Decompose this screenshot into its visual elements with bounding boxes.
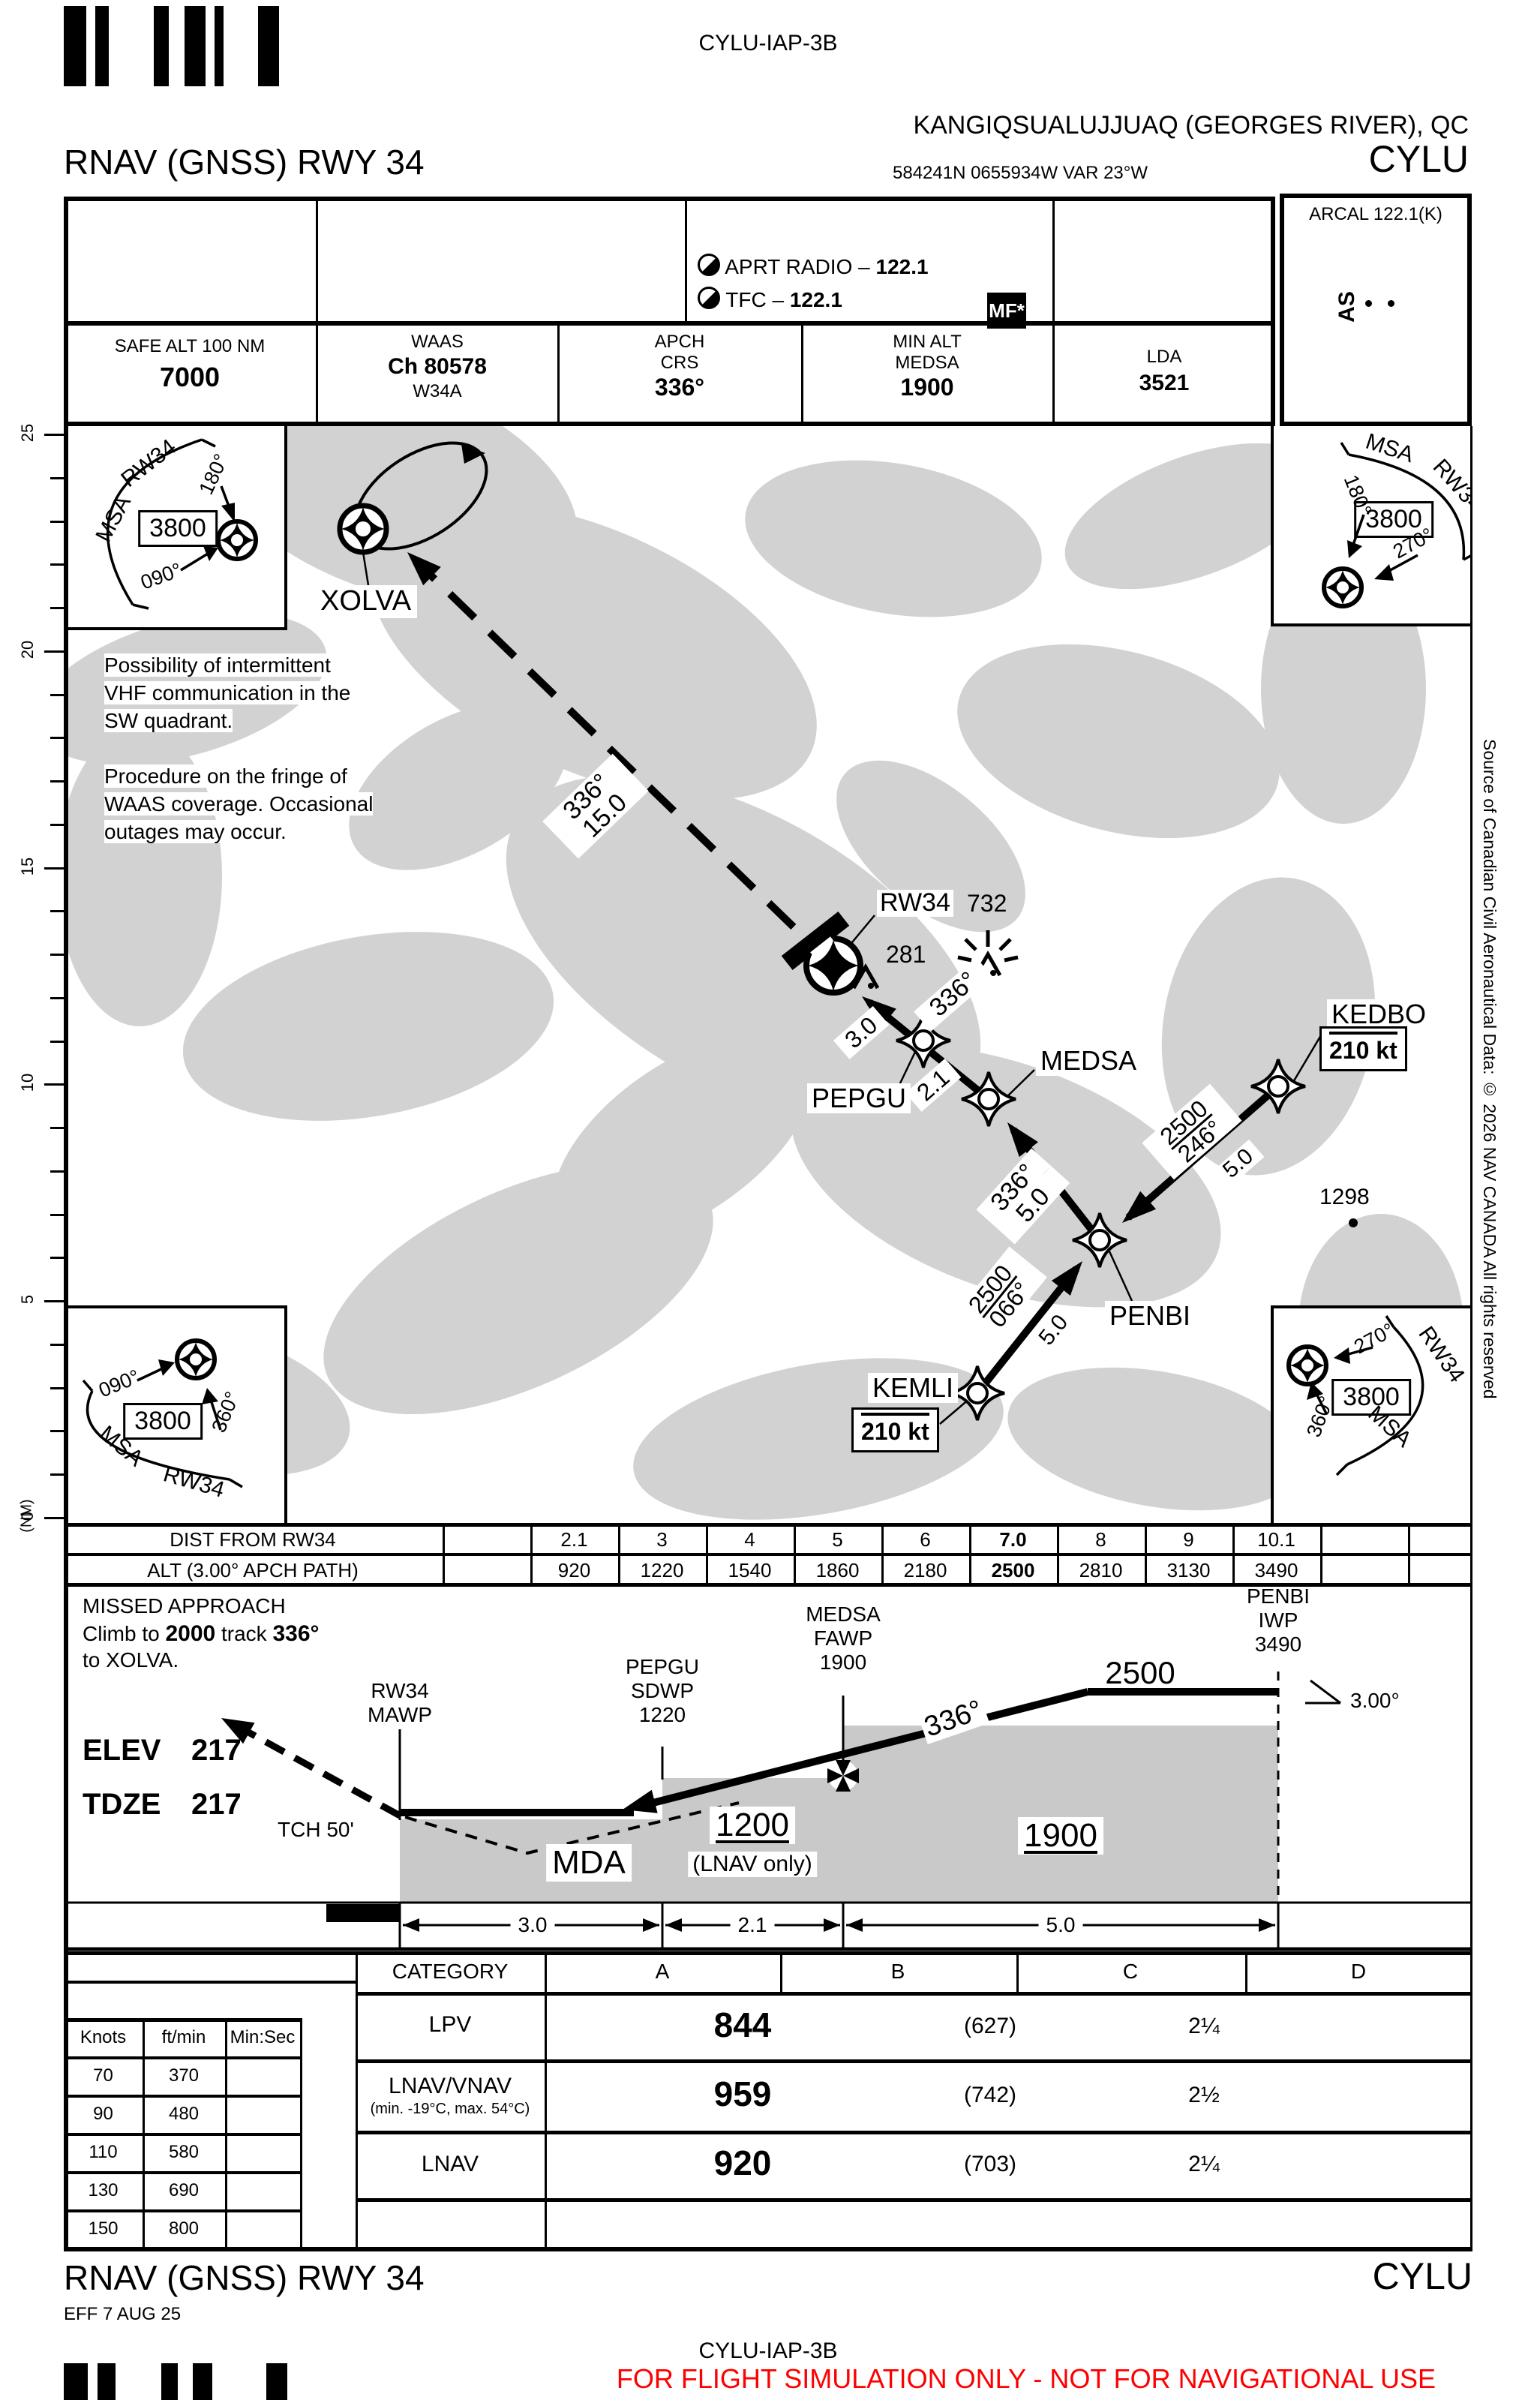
decoration: [64, 2133, 300, 2136]
scale-tick: [50, 1170, 64, 1173]
apch-crs-cell: APCH CRS 336°: [655, 332, 705, 401]
speed-header: ft/min: [162, 2027, 206, 2048]
descent-angle-icon: [1305, 1681, 1340, 1703]
minima-row-lnav-da: 920: [714, 2143, 772, 2183]
missed-approach-title: MISSED APPROACH: [83, 1595, 286, 1617]
decoration: [1057, 1523, 1059, 1583]
scale-tick: [50, 477, 64, 479]
speed-cell: 130: [88, 2180, 118, 2201]
dist-cell: 5: [832, 1528, 842, 1551]
waas-channel: Ch 80578: [388, 354, 487, 380]
barcode-bar: [64, 2363, 88, 2400]
simulation-warning: FOR FLIGHT SIMULATION ONLY - NOT FOR NAV…: [617, 2365, 1436, 2393]
minima-row-lnav-vis: 2¼: [1188, 2152, 1220, 2177]
minima-row-lpv-vis: 2¼: [1188, 2014, 1220, 2039]
decoration: [530, 1523, 533, 1583]
min-alt-cell: MIN ALT MEDSA 1900: [893, 332, 962, 401]
medsa-fawp-label: MEDSAFAWP1900: [806, 1603, 881, 1675]
tch-label: TCH 50': [278, 1819, 354, 1840]
apch-crs-value: 336°: [655, 374, 705, 401]
barcode-bar: [185, 6, 206, 86]
scale-tick: [50, 1041, 64, 1043]
chart-id-bottom: CYLU-IAP-3B: [698, 2339, 837, 2363]
tfc-freq: 122.1: [790, 288, 842, 311]
alt-cell: 1540: [728, 1559, 772, 1582]
speed-cell: 150: [88, 2218, 118, 2239]
procedure-title-footer: RNAV (GNSS) RWY 34: [64, 2260, 425, 2296]
apch-label1: APCH: [655, 332, 705, 353]
decoration: [64, 2248, 300, 2251]
scale-tick: [50, 1257, 64, 1259]
minima-row-lnavvnav-sub: (min. -19°C, max. 54°C): [371, 2101, 530, 2118]
barcode-bar: [266, 2363, 287, 2400]
kemli-speed-box: 210 kt: [851, 1407, 939, 1452]
scale-label: 15: [18, 855, 38, 878]
waas-id: W34A: [388, 381, 487, 402]
dist-cell: 3: [656, 1528, 667, 1551]
aerodrome-sketch-label: AS: [1334, 291, 1360, 323]
speed-cell: 690: [169, 2180, 199, 2201]
speed-cell: 370: [169, 2065, 199, 2086]
missed-approach-text2: to XOLVA.: [83, 1649, 179, 1671]
aprt-radio-freq: 122.1: [876, 255, 929, 278]
decoration: [64, 2171, 300, 2174]
dist-cell: 7.0: [999, 1528, 1026, 1551]
lda-label: LDA: [1139, 347, 1190, 368]
decoration: [64, 1523, 1472, 1527]
barcode-bar: [154, 6, 169, 86]
mf-badge: MF*: [987, 293, 1026, 329]
coordinates: 584241N 0655934W VAR 23°W: [893, 164, 1148, 182]
msa-inset-bottomleft: MSA RW34 090° 360° 3800: [68, 1305, 287, 1523]
decoration: [1145, 1523, 1147, 1583]
safe-alt-value: 7000: [115, 362, 266, 393]
fawp-block-altitude: 1900: [1018, 1817, 1103, 1855]
minima-header-a: A: [656, 1960, 670, 1984]
scale-tick: [50, 824, 64, 826]
scale-tick: [44, 867, 64, 870]
scale-tick: [44, 1517, 64, 1519]
scale-label: 10: [18, 1071, 38, 1094]
icao-code: CYLU: [1369, 140, 1469, 179]
scale-tick: [50, 997, 64, 999]
segment3-dist: 5.0: [1039, 1913, 1083, 1937]
speed-cell: 480: [169, 2104, 199, 2125]
medsa-label: MEDSA: [1036, 1046, 1141, 1076]
speed-cell: 90: [93, 2104, 113, 2125]
kemli-label: KEMLI: [868, 1373, 958, 1403]
scale-tick: [50, 1473, 64, 1476]
dist-cell: 4: [744, 1528, 755, 1551]
obstacle-281-label: 281: [886, 942, 926, 968]
scale-tick: [44, 1083, 64, 1086]
elev-label: ELEV: [83, 1735, 161, 1766]
speed-cell: 70: [93, 2065, 113, 2086]
lda-cell: LDA 3521: [1139, 347, 1190, 396]
rw34-mawp-label: RW34MAWP: [368, 1679, 432, 1727]
decoration: [706, 1523, 708, 1583]
kedbo-label: KEDBO: [1327, 999, 1430, 1029]
approach-plate: CYLU-IAP-3B KANGIQSUALUJJUAQ (GEORGES RI…: [0, 0, 1540, 2400]
pepgu-sdwp-label: PEPGUSDWP1220: [626, 1655, 699, 1728]
decoration: [1320, 1523, 1322, 1583]
airport-name: KANGIQSUALUJJUAQ (GEORGES RIVER), QC: [913, 113, 1469, 140]
spot-elevation-dot: [1349, 1218, 1358, 1227]
runway-dot: [1388, 300, 1394, 307]
minalt-label1: MIN ALT: [893, 332, 962, 353]
safe-alt-label: SAFE ALT 100 NM: [115, 336, 266, 357]
minima-row-lpv-da: 844: [714, 2005, 772, 2045]
descent-angle: 3.00°: [1350, 1690, 1400, 1711]
scale-tick: [44, 1300, 64, 1302]
missed-approach-text: Climb to 2000 track 336°: [83, 1622, 320, 1646]
waas-cell: WAAS Ch 80578 W34A: [388, 332, 487, 402]
scale-tick: [50, 607, 64, 609]
tfc-label: TFC –: [725, 288, 784, 311]
dist-cell: 10.1: [1257, 1528, 1295, 1551]
chart-id-top: CYLU-IAP-3B: [698, 32, 837, 56]
mda-label: MDA: [546, 1844, 632, 1882]
decoration: [64, 2095, 300, 2098]
minima-header-c: C: [1123, 1960, 1138, 1984]
alt-cell: 1220: [641, 1559, 684, 1582]
barcode-bar: [64, 6, 86, 86]
dist-cell: 9: [1183, 1528, 1193, 1551]
decoration: [881, 1523, 884, 1583]
scale-label: 5: [18, 1288, 38, 1311]
tdze-value: 217: [191, 1789, 242, 1820]
alt-cell: 3490: [1255, 1559, 1298, 1582]
scale-tick: [44, 650, 64, 653]
aprt-radio-label: APRT RADIO –: [725, 255, 869, 278]
minima-row-lnavvnav-vis: 2½: [1188, 2083, 1220, 2108]
alt-cell: 2500: [992, 1559, 1035, 1582]
scale-tick: [50, 737, 64, 739]
waas-note: Procedure on the fringe ofWAAS coverage.…: [104, 762, 373, 846]
obstacle-732-label: 732: [967, 891, 1007, 917]
apch-label2: CRS: [655, 353, 705, 374]
msa-altitude: 3800: [1354, 501, 1433, 538]
minima-row-lpv-hat: (627): [964, 2014, 1016, 2039]
speed-cell: 110: [89, 2142, 117, 2163]
tdze-label: TDZE: [83, 1789, 161, 1820]
decoration: [443, 1523, 445, 1583]
radio-icon: [698, 287, 720, 309]
decoration: [64, 2056, 300, 2059]
plan-view: XOLVA RW34 281 732 PEPGU MEDSA PENBI KEM…: [64, 426, 1472, 1523]
barcode-bar: [95, 6, 109, 86]
barcode-bar: [161, 2363, 178, 2400]
decoration: [143, 2018, 145, 2248]
speed-header: Min:Sec: [230, 2027, 296, 2048]
decoration: [1408, 1523, 1410, 1583]
scale-tick: [50, 910, 64, 912]
minima-row-lpv-label: LPV: [429, 2012, 472, 2038]
scale-tick: [50, 1127, 64, 1129]
minima-header-d: D: [1351, 1960, 1366, 1984]
barcode-bar: [193, 2363, 212, 2400]
segment2-dist: 2.1: [731, 1913, 775, 1937]
scale-tick: [50, 1387, 64, 1389]
minima-row-lnav-label: LNAV: [422, 2152, 479, 2177]
segment1-dist: 3.0: [511, 1913, 555, 1937]
waas-label: WAAS: [388, 332, 487, 353]
spot-elevation-label: 1298: [1319, 1185, 1370, 1209]
decoration: [64, 1523, 68, 1583]
msa-altitude: 3800: [138, 510, 218, 547]
decoration: [794, 1523, 796, 1583]
radio-frequencies: APRT RADIO – 122.1 TFC – 122.1: [698, 254, 929, 312]
xolva-waypoint-symbol: [340, 506, 386, 552]
attribution: Source of Canadian Civil Aeronautical Da…: [1479, 739, 1499, 1684]
xolva-label: XOLVA: [314, 585, 417, 618]
step-note: (LNAV only): [688, 1852, 817, 1877]
scale-tick: [50, 563, 64, 566]
dist-cell: 6: [920, 1528, 930, 1551]
penbi-iwp-label: PENBIIWP3490: [1247, 1584, 1310, 1657]
decoration: [969, 1523, 971, 1583]
radio-icon: [698, 254, 720, 276]
speed-cell: 800: [169, 2218, 199, 2239]
alt-cell: 2180: [904, 1559, 947, 1582]
alt-cell: 920: [558, 1559, 590, 1582]
vhf-note: Possibility of intermittentVHF communica…: [104, 651, 350, 735]
dist-cell: 8: [1095, 1528, 1106, 1551]
pepgu-label: PEPGU: [807, 1083, 911, 1113]
rw34-label: RW34: [877, 890, 953, 917]
minima-row-lnavvnav-hat: (742): [964, 2083, 1016, 2108]
alt-cell: 2810: [1079, 1559, 1123, 1582]
runway-symbol: [326, 1904, 400, 1922]
scale-unit: (NM): [20, 1499, 35, 1532]
barcode-bar: [98, 2363, 116, 2400]
msa-inset-topright: MSA RW34 180° 270° 3800: [1271, 426, 1472, 626]
decoration: [64, 2209, 300, 2212]
procedure-title: RNAV (GNSS) RWY 34: [64, 144, 425, 180]
dist-cell: 2.1: [560, 1528, 587, 1551]
min-alt-value: 1900: [893, 374, 962, 401]
scale-tick: [50, 521, 64, 523]
msa-altitude: 3800: [123, 1403, 203, 1440]
scale-label: 25: [18, 422, 38, 444]
decoration: [64, 2018, 300, 2022]
elev-value: 217: [191, 1735, 242, 1766]
msa-inset-topleft: MSA RW34 180° 090° 3800: [68, 426, 287, 630]
speed-header: Knots: [80, 2027, 126, 2048]
minima-header-category: CATEGORY: [392, 1960, 509, 1984]
scale-tick: [44, 434, 64, 436]
minima-row-lnavvnav-label: LNAV/VNAV: [389, 2074, 512, 2099]
level-altitude: 2500: [1105, 1655, 1175, 1691]
decoration: [225, 2018, 227, 2248]
alt-cell: 1860: [816, 1559, 860, 1582]
minima-row-lnav-hat: (703): [964, 2152, 1016, 2177]
scale-tick: [50, 780, 64, 782]
decoration: [1470, 1523, 1472, 1583]
scale-tick: [50, 694, 64, 696]
kedbo-speed-box: 210 kt: [1319, 1026, 1407, 1071]
penbi-label: PENBI: [1105, 1301, 1195, 1331]
scale-label: 20: [18, 638, 38, 661]
scale-tick: [50, 1430, 64, 1432]
minalt-label2: MEDSA: [893, 353, 962, 374]
decoration: [64, 1553, 1472, 1556]
msa-altitude: 3800: [1331, 1379, 1411, 1416]
scale-tick: [50, 1214, 64, 1216]
missed-approach-climb: [235, 1725, 400, 1816]
step-altitude: 1200: [710, 1807, 795, 1844]
decoration: [300, 2018, 302, 2248]
arcal-label: ARCAL 122.1(K): [1309, 204, 1442, 225]
safe-alt-cell: SAFE ALT 100 NM 7000: [115, 336, 266, 393]
barcode-bar: [258, 6, 279, 86]
decoration: [618, 1523, 620, 1583]
scale-tick: [50, 954, 64, 956]
alt-cell: 3130: [1167, 1559, 1211, 1582]
decoration: [1232, 1523, 1235, 1583]
decoration: [64, 2018, 66, 2248]
scale-tick: [50, 1344, 64, 1346]
icao-code-footer: CYLU: [1373, 2257, 1472, 2296]
effective-date: EFF 7 AUG 25: [64, 2305, 181, 2323]
minima-header-b: B: [891, 1960, 905, 1984]
arcal-box: [1280, 194, 1472, 426]
speed-cell: 580: [169, 2142, 199, 2163]
minima-row-lnavvnav-da: 959: [714, 2074, 772, 2114]
lda-value: 3521: [1139, 371, 1190, 396]
runway-dot: [1365, 300, 1372, 307]
msa-inset-bottomright: MSA RW34 270° 360° 3800: [1271, 1305, 1472, 1523]
barcode-bar: [215, 6, 224, 86]
